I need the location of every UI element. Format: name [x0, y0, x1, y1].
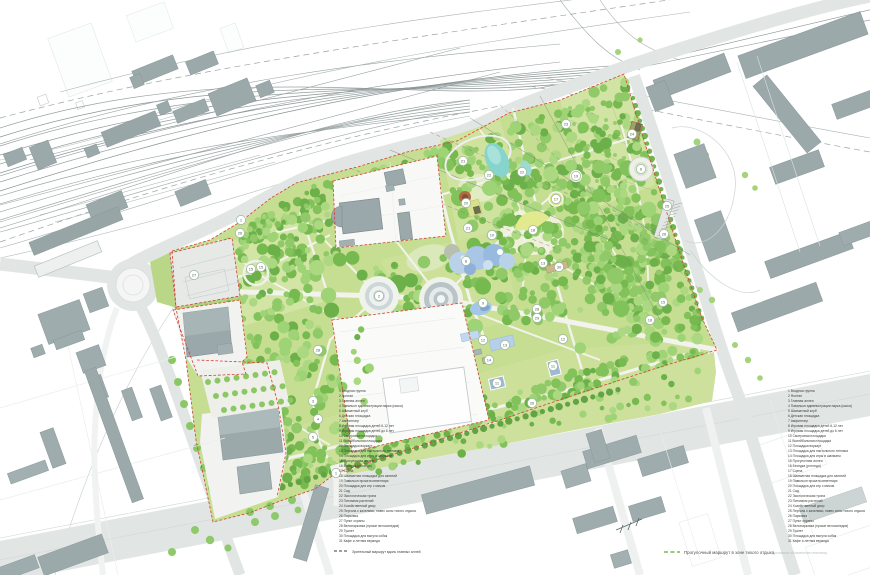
svg-text:3 Главная аллея: 3 Главная аллея	[788, 399, 814, 403]
svg-text:17 Сцена: 17 Сцена	[339, 469, 353, 473]
svg-text:26 Парковка: 26 Парковка	[339, 514, 358, 518]
svg-text:22 Экологическая тропа: 22 Экологическая тропа	[788, 494, 825, 498]
svg-text:21 Сад: 21 Сад	[788, 489, 799, 493]
svg-text:25: 25	[665, 203, 670, 208]
svg-text:12: 12	[561, 336, 566, 341]
svg-text:18: 18	[531, 227, 536, 232]
svg-text:23: 23	[564, 121, 569, 126]
svg-text:24: 24	[630, 131, 635, 136]
svg-text:12: 12	[481, 337, 486, 342]
svg-text:15: 15	[249, 266, 254, 271]
svg-text:2 Фонтан: 2 Фонтан	[788, 394, 802, 398]
svg-text:15 Прогулочная аллея: 15 Прогулочная аллея	[339, 459, 374, 463]
svg-text:13: 13	[541, 260, 546, 265]
svg-text:10 Смотровая площадка: 10 Смотровая площадка	[788, 434, 826, 438]
svg-text:29: 29	[535, 315, 540, 320]
svg-text:13 Площадка для настольного те: 13 Площадка для настольного тенниса	[339, 449, 399, 453]
svg-text:9 Игровая площадка детей до 6: 9 Игровая площадка детей до 6 лет	[788, 429, 843, 433]
svg-text:14 Площадка для игры в шахматы: 14 Площадка для игры в шахматы	[788, 454, 842, 458]
svg-text:30 Площадка для выгула собак: 30 Площадка для выгула собак	[788, 534, 837, 538]
svg-text:Зрительный маршрут вдоль главн: Зрительный маршрут вдоль главных аллей	[352, 550, 421, 554]
svg-text:30: 30	[557, 264, 562, 269]
svg-text:(условные обозначения генплана: (условные обозначения генплана)	[773, 551, 827, 555]
svg-text:25 Пергола с качелями, навес з: 25 Пергола с качелями, навес зоны тихого…	[339, 509, 416, 513]
svg-text:28 Велопарковка (прокат велоси: 28 Велопарковка (прокат велосипедов)	[339, 524, 399, 528]
svg-text:16 Беседка (ротонда): 16 Беседка (ротонда)	[788, 464, 821, 468]
svg-text:1 Входная группа: 1 Входная группа	[788, 389, 815, 393]
svg-text:23 Питомник растений: 23 Питомник растений	[339, 499, 374, 503]
svg-text:24 Хозяйственный двор: 24 Хозяйственный двор	[788, 504, 825, 508]
svg-text:21: 21	[461, 158, 466, 163]
svg-text:18 Шахматная площадка для заня: 18 Шахматная площадка для занятий	[788, 474, 846, 478]
svg-text:26 Парковка: 26 Парковка	[788, 514, 807, 518]
svg-text:22: 22	[487, 172, 492, 177]
svg-text:21: 21	[466, 225, 471, 230]
svg-text:19: 19	[574, 173, 579, 178]
svg-text:1 Входная группа: 1 Входная группа	[339, 389, 366, 393]
svg-text:27 Пункт охраны: 27 Пункт охраны	[788, 519, 814, 523]
svg-text:16 Беседка (ротонда): 16 Беседка (ротонда)	[339, 464, 372, 468]
svg-text:27 Пункт охраны: 27 Пункт охраны	[339, 519, 365, 523]
svg-text:7 Амфитеатр: 7 Амфитеатр	[788, 419, 808, 423]
svg-text:3 Главная аллея: 3 Главная аллея	[339, 399, 365, 403]
svg-text:26: 26	[662, 231, 667, 236]
svg-text:28: 28	[535, 306, 540, 311]
svg-text:11 Волейбольная площадка: 11 Волейбольная площадка	[788, 439, 831, 443]
svg-text:4 Павильон администрации парка: 4 Павильон администрации парка (касса)	[339, 404, 403, 408]
svg-text:11 Волейбольная площадка: 11 Волейбольная площадка	[339, 439, 382, 443]
svg-text:19 Павильон проката инвентаря: 19 Павильон проката инвентаря	[339, 479, 389, 483]
svg-text:14: 14	[487, 357, 492, 362]
svg-text:22 Экологическая тропа: 22 Экологическая тропа	[339, 494, 376, 498]
svg-text:25 Пергола с качелями, навес з: 25 Пергола с качелями, навес зоны тихого…	[788, 509, 865, 513]
svg-text:31 Кафе и летняя веранда: 31 Кафе и летняя веранда	[788, 539, 829, 543]
svg-text:5 Шахматный клуб: 5 Шахматный клуб	[788, 409, 817, 413]
svg-text:24 Хозяйственный двор: 24 Хозяйственный двор	[339, 504, 376, 508]
svg-text:Прогулочный маршрут в зоне тих: Прогулочный маршрут в зоне тихого отдыха	[684, 550, 775, 555]
svg-text:10: 10	[490, 232, 495, 237]
svg-text:15 Прогулочная аллея: 15 Прогулочная аллея	[788, 459, 823, 463]
svg-text:14 Площадка для игры в шахматы: 14 Площадка для игры в шахматы	[339, 454, 393, 458]
svg-text:30 Площадка для выгула собак: 30 Площадка для выгула собак	[339, 534, 388, 538]
svg-text:26: 26	[238, 230, 243, 235]
svg-text:23 Питомник растений: 23 Питомник растений	[788, 499, 823, 503]
svg-text:15: 15	[661, 299, 666, 304]
svg-text:7 Амфитеатр: 7 Амфитеатр	[339, 419, 359, 423]
svg-text:26: 26	[530, 400, 535, 405]
svg-text:5 Шахматный клуб: 5 Шахматный клуб	[339, 409, 368, 413]
svg-text:17 Сцена: 17 Сцена	[788, 469, 802, 473]
svg-text:2 Фонтан: 2 Фонтан	[339, 394, 353, 398]
svg-text:19 Павильон проката инвентаря: 19 Павильон проката инвентаря	[788, 479, 838, 483]
svg-text:4 Павильон администрации парка: 4 Павильон администрации парка (касса)	[788, 404, 852, 408]
svg-text:20 Площадка для игр с мячом: 20 Площадка для игр с мячом	[788, 484, 835, 488]
svg-text:6 Детская площадка: 6 Детская площадка	[339, 414, 370, 418]
svg-text:10 Смотровая площадка: 10 Смотровая площадка	[339, 434, 377, 438]
svg-text:12 Площадка воркаут: 12 Площадка воркаут	[339, 444, 373, 448]
svg-text:8 Игровая площадка детей 6-12: 8 Игровая площадка детей 6-12 лет	[339, 424, 394, 428]
svg-text:22: 22	[520, 169, 525, 174]
svg-text:20 Площадка для игр с мячом: 20 Площадка для игр с мячом	[339, 484, 386, 488]
svg-text:15: 15	[259, 264, 264, 269]
svg-text:28: 28	[316, 347, 321, 352]
svg-text:31 Кафе и летняя веранда: 31 Кафе и летняя веранда	[339, 539, 380, 543]
svg-text:29 Туалет: 29 Туалет	[788, 529, 804, 533]
svg-text:13: 13	[503, 342, 508, 347]
svg-text:29 Туалет: 29 Туалет	[339, 529, 355, 533]
svg-text:21 Сад: 21 Сад	[339, 489, 350, 493]
svg-text:17: 17	[554, 196, 559, 201]
svg-text:20: 20	[464, 200, 469, 205]
svg-text:27: 27	[192, 272, 197, 277]
svg-text:16: 16	[648, 317, 653, 322]
svg-text:12 Площадка воркаут: 12 Площадка воркаут	[788, 444, 822, 448]
svg-text:8 Игровая площадка детей 6-12: 8 Игровая площадка детей 6-12 лет	[788, 424, 843, 428]
svg-text:18 Шахматная площадка для заня: 18 Шахматная площадка для занятий	[339, 474, 397, 478]
svg-text:9 Игровая площадка детей до 6: 9 Игровая площадка детей до 6 лет	[339, 429, 394, 433]
svg-text:13 Площадка для настольного те: 13 Площадка для настольного тенниса	[788, 449, 848, 453]
svg-text:28 Велопарковка (прокат велоси: 28 Велопарковка (прокат велосипедов)	[788, 524, 848, 528]
svg-text:6 Детская площадка: 6 Детская площадка	[788, 414, 819, 418]
